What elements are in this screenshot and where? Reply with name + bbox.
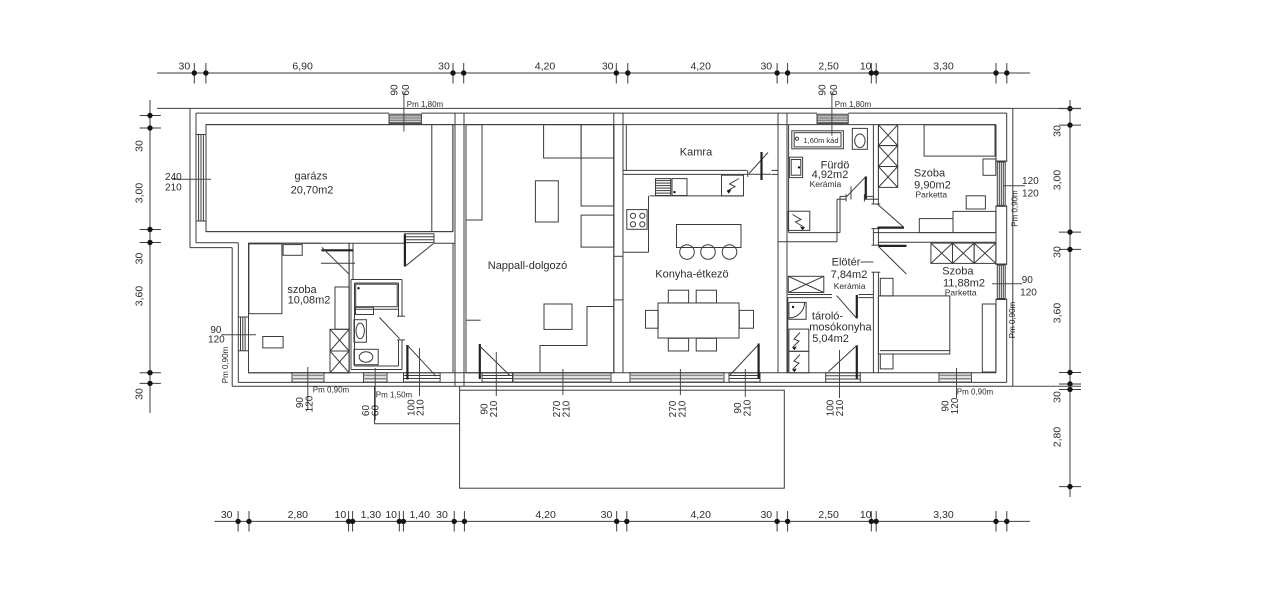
svg-text:210: 210 <box>489 400 500 417</box>
svg-text:30: 30 <box>221 509 233 521</box>
svg-text:60: 60 <box>371 405 382 417</box>
svg-text:120: 120 <box>950 397 961 414</box>
svg-text:30: 30 <box>134 388 146 400</box>
svg-text:90: 90 <box>389 84 400 96</box>
svg-text:7,84m2: 7,84m2 <box>831 269 868 281</box>
svg-text:Kamra: Kamra <box>680 146 713 158</box>
svg-text:6,90: 6,90 <box>292 61 313 73</box>
svg-text:30: 30 <box>134 253 146 265</box>
svg-text:30: 30 <box>436 509 448 521</box>
svg-text:Pm 0,90m: Pm 0,90m <box>313 386 350 395</box>
svg-text:4,20: 4,20 <box>690 61 711 73</box>
svg-text:3,30: 3,30 <box>933 509 954 521</box>
svg-text:2,50: 2,50 <box>818 61 839 73</box>
svg-text:30: 30 <box>760 61 772 73</box>
svg-text:Szoba: Szoba <box>942 266 974 278</box>
svg-text:120: 120 <box>1020 287 1037 298</box>
svg-text:5,04m2: 5,04m2 <box>812 333 849 345</box>
svg-text:1,40: 1,40 <box>409 509 430 521</box>
svg-text:60: 60 <box>401 84 412 96</box>
svg-text:Pm 1,80m: Pm 1,80m <box>407 100 444 109</box>
svg-text:Pm 1,50m: Pm 1,50m <box>376 391 413 400</box>
svg-text:30: 30 <box>601 509 613 521</box>
svg-text:120: 120 <box>1022 176 1039 187</box>
svg-text:210: 210 <box>165 183 182 194</box>
svg-text:3,30: 3,30 <box>933 61 954 73</box>
svg-text:10: 10 <box>335 509 347 521</box>
svg-text:90: 90 <box>817 84 828 96</box>
svg-text:30: 30 <box>438 61 450 73</box>
svg-text:Pm 0,90m: Pm 0,90m <box>1010 190 1019 227</box>
svg-text:30: 30 <box>1052 246 1064 258</box>
svg-text:mosókonyha: mosókonyha <box>809 321 872 333</box>
svg-text:30: 30 <box>602 61 614 73</box>
svg-text:garázs: garázs <box>294 171 328 183</box>
svg-text:120: 120 <box>1022 188 1039 199</box>
svg-text:2,50: 2,50 <box>818 509 839 521</box>
svg-text:20,70m2: 20,70m2 <box>291 185 334 197</box>
svg-text:3,60: 3,60 <box>134 286 146 307</box>
svg-text:Konyha-étkezö: Konyha-étkezö <box>655 269 728 281</box>
svg-text:210: 210 <box>562 400 573 417</box>
svg-text:1,30: 1,30 <box>361 509 382 521</box>
svg-text:Elötér: Elötér <box>832 257 861 269</box>
svg-text:Pm 1,80m: Pm 1,80m <box>835 100 872 109</box>
svg-text:1,60m kád: 1,60m kád <box>803 136 838 145</box>
svg-text:120: 120 <box>208 334 225 345</box>
svg-text:30: 30 <box>760 509 772 521</box>
svg-text:60: 60 <box>829 84 840 96</box>
svg-text:Pm 0,90m: Pm 0,90m <box>957 388 994 397</box>
svg-text:Pm 0,90m: Pm 0,90m <box>1008 301 1017 338</box>
svg-text:4,20: 4,20 <box>690 509 711 521</box>
svg-text:2,80: 2,80 <box>288 509 309 521</box>
svg-text:30: 30 <box>179 61 191 73</box>
svg-text:10: 10 <box>860 509 872 521</box>
svg-text:3,00: 3,00 <box>1052 170 1064 191</box>
svg-text:240: 240 <box>165 172 182 183</box>
svg-text:4,20: 4,20 <box>535 509 556 521</box>
svg-text:3,00: 3,00 <box>134 183 146 204</box>
svg-text:Kerámia: Kerámia <box>834 281 866 291</box>
svg-text:90: 90 <box>1022 275 1034 286</box>
svg-text:Parketta: Parketta <box>945 288 977 298</box>
svg-text:10,08m2: 10,08m2 <box>288 295 331 307</box>
svg-text:210: 210 <box>835 399 846 416</box>
svg-text:3,60: 3,60 <box>1052 303 1064 324</box>
svg-text:210: 210 <box>416 399 427 416</box>
svg-text:30: 30 <box>1052 125 1064 137</box>
svg-text:Parketta: Parketta <box>915 190 947 200</box>
svg-text:Szoba: Szoba <box>914 168 946 180</box>
svg-text:4,20: 4,20 <box>535 61 556 73</box>
svg-text:120: 120 <box>304 395 315 412</box>
svg-text:Nappall-dolgozó: Nappall-dolgozó <box>488 260 568 272</box>
svg-text:30: 30 <box>1052 391 1064 403</box>
svg-text:10: 10 <box>860 61 872 73</box>
svg-text:210: 210 <box>678 400 689 417</box>
svg-text:30: 30 <box>134 140 146 152</box>
svg-text:Pm 0,90m: Pm 0,90m <box>221 346 230 383</box>
svg-text:2,80: 2,80 <box>1052 427 1064 448</box>
svg-text:210: 210 <box>743 399 754 416</box>
svg-text:10: 10 <box>385 509 397 521</box>
svg-text:Kerámia: Kerámia <box>810 179 842 189</box>
